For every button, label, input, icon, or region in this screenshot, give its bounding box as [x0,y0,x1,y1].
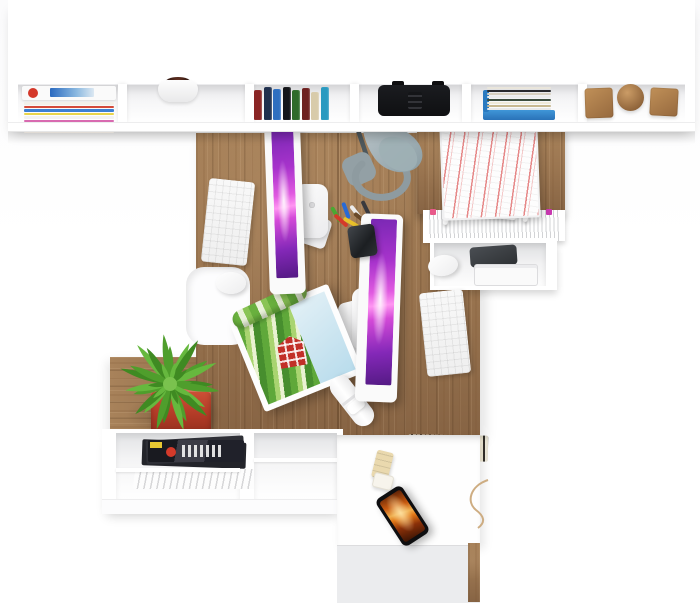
horizontal-book-stack-entry [487,87,551,89]
magazine-title-marks [182,445,222,457]
imac-left-screen [264,125,306,294]
succulent-plant [116,326,224,438]
lower-shelf-divider-shelf [116,468,240,472]
workspace-scene [0,0,700,602]
magazine-red-logo [28,88,38,98]
magazine-pile-cover [148,440,244,462]
magazine-page-edges-entry [24,106,114,108]
horizontal-book-stack [487,86,551,110]
shelf-divider [350,84,359,122]
shelf-book-row [254,86,334,120]
horizontal-book-stack-entry [487,90,551,92]
shelf-book-row-entry [311,92,319,120]
wooden-sphere [617,84,644,111]
magazine-page-edges-entry [24,102,114,105]
shelf-book-row-entry [321,87,329,120]
wooden-cube [584,88,613,119]
plant-center [163,377,177,391]
magazine-top-cover [22,86,116,100]
horizontal-book-stack-entry [487,108,551,110]
speaker-grille [408,92,422,109]
imac-left-display [271,130,298,279]
horizontal-book-stack-entry [487,96,551,98]
keyboard-right [419,289,472,377]
horizontal-book-stack-entry [487,105,551,107]
blue-book-base [483,110,555,120]
shelf-divider [462,84,471,122]
horizontal-book-stack-entry [487,102,551,104]
magazine-cover-photo [50,88,94,97]
pen-cup [347,223,378,258]
file-tab-row-entry [546,209,552,215]
horizontal-book-stack-entry [487,93,551,95]
keyboard-left [201,178,256,266]
magazine-page-edges-entry [24,113,114,115]
files-front-lip [423,238,557,243]
lower-shelf-left-cubby [116,433,240,499]
magazine-page-edges-entry [24,116,114,119]
shelf-right-wall [685,84,695,122]
shelf-book-row-entry [292,90,300,120]
paper-file-fan [133,469,266,489]
shelf-divider [118,84,127,122]
white-cabinet-front [337,545,480,603]
lower-shelf-right-cubby [254,433,337,499]
lower-shelf-front-edge [102,499,343,514]
shelf-magazine-stack [22,86,116,120]
lower-shelf-unit [102,429,343,513]
shelf-book-row-entry [254,90,262,120]
cable-wire [464,478,494,530]
shelf-book-row-entry [283,87,291,120]
printer-white-unit [474,264,538,286]
lower-shelf-divider-shelf [254,458,337,462]
magazine-page-edges-entry [24,109,114,112]
magazine-logo [166,447,176,457]
shelf-white-pot [158,80,198,102]
magazine-yellow-tab [150,442,162,448]
shelf-book-row-entry [273,89,281,120]
horizontal-book-stack-entry [487,99,551,101]
mouse-left [216,272,246,294]
shelf-floor-shadow [8,131,695,144]
shelf-divider [245,84,254,122]
imac-left-cable-port [309,202,315,208]
shelf-book-row-entry [264,87,272,120]
shelf-book-row-entry [302,88,310,120]
wooden-cube [649,87,678,116]
wall-shelf-unit [8,0,695,131]
shelf-top-face [8,0,695,85]
shelf-left-wall [8,84,18,122]
cabinet-wood-edge [468,543,480,602]
